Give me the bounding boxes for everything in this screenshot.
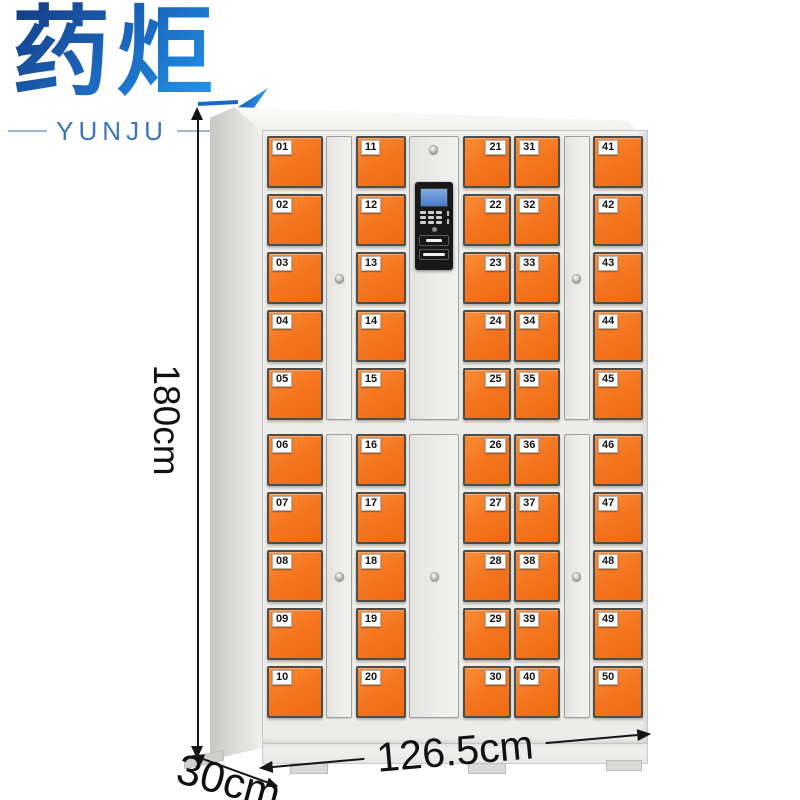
locker-door: 45 xyxy=(593,368,643,420)
indicator-lights-icon xyxy=(447,211,449,224)
logo-flank-line-left xyxy=(8,130,47,132)
door-number-label: 19 xyxy=(361,612,381,627)
locker-door: 11 xyxy=(356,136,406,188)
door-number-label: 38 xyxy=(519,554,539,569)
door-number-label: 37 xyxy=(519,496,539,511)
locker-door: 18 xyxy=(356,550,406,602)
brand-logo-text: 药炬 xyxy=(12,0,220,106)
locker-door-column: 21222324252627282930 xyxy=(463,136,511,743)
locker-door: 28 xyxy=(463,550,511,602)
locker-slot: 41 xyxy=(593,136,643,188)
arrow-up-icon xyxy=(191,107,203,120)
keypad-icon xyxy=(420,211,442,224)
lock-panel-upper xyxy=(326,136,352,420)
locker-door: 01 xyxy=(267,136,323,188)
door-number-label: 48 xyxy=(598,554,618,569)
locker-slot: 04 xyxy=(267,310,323,362)
locker-door: 23 xyxy=(463,252,511,304)
door-number-label: 14 xyxy=(361,314,381,329)
lock-panel-lower xyxy=(326,434,352,718)
locker-slot: 39 xyxy=(514,608,560,660)
door-number-label: 34 xyxy=(519,314,539,329)
door-number-label: 39 xyxy=(519,612,539,627)
keypad-row xyxy=(415,207,453,224)
locker-door: 10 xyxy=(267,666,323,718)
keyhole-icon xyxy=(335,572,344,581)
door-number-label: 50 xyxy=(598,670,618,685)
door-number-label: 29 xyxy=(485,612,505,627)
locker-door: 12 xyxy=(356,194,406,246)
door-number-label: 27 xyxy=(485,496,505,511)
locker-slot: 40 xyxy=(514,666,560,718)
keyhole-icon xyxy=(429,145,438,154)
locker-slot: 21 xyxy=(463,136,511,188)
locker-door: 04 xyxy=(267,310,323,362)
locker-door: 43 xyxy=(593,252,643,304)
door-number-label: 25 xyxy=(485,372,505,387)
keyhole-icon xyxy=(430,572,439,581)
locker-door: 39 xyxy=(514,608,560,660)
door-number-label: 33 xyxy=(519,256,539,271)
locker-door: 44 xyxy=(593,310,643,362)
control-column xyxy=(409,136,459,743)
locker-door: 37 xyxy=(514,492,560,544)
locker-slot: 02 xyxy=(267,194,323,246)
door-number-label: 16 xyxy=(361,438,381,453)
door-number-label: 06 xyxy=(272,438,292,453)
locker-door: 25 xyxy=(463,368,511,420)
speaker-icon xyxy=(432,227,437,232)
locker-door-column: 01020304050607080910 xyxy=(267,136,323,743)
locker-slot: 26 xyxy=(463,434,511,486)
locker-door-column: 41424344454647484950 xyxy=(593,136,643,743)
locker-slot: 48 xyxy=(593,550,643,602)
locker-door: 06 xyxy=(267,434,323,486)
locker-door: 21 xyxy=(463,136,511,188)
locker-slot: 47 xyxy=(593,492,643,544)
locker-slot: 32 xyxy=(514,194,560,246)
lcd-screen-icon xyxy=(420,188,448,207)
locker-slot: 09 xyxy=(267,608,323,660)
locker-slot: 46 xyxy=(593,434,643,486)
service-panel-lower xyxy=(409,434,459,718)
door-number-label: 32 xyxy=(519,198,539,213)
door-number-label: 12 xyxy=(361,198,381,213)
door-number-label: 43 xyxy=(598,256,618,271)
keyhole-icon xyxy=(572,572,581,581)
locker-door-column: 11121314151617181920 xyxy=(356,136,406,743)
product-image: 药炬 YUNJU 0102030405060708091011121314151… xyxy=(0,0,800,800)
locker-slot: 11 xyxy=(356,136,406,188)
arrow-right-icon xyxy=(637,728,652,741)
locker-door: 03 xyxy=(267,252,323,304)
locker-door: 14 xyxy=(356,310,406,362)
door-number-label: 44 xyxy=(598,314,618,329)
locker-door: 24 xyxy=(463,310,511,362)
locker-door: 47 xyxy=(593,492,643,544)
door-number-label: 13 xyxy=(361,256,381,271)
lock-panel-lower xyxy=(564,434,590,718)
locker-slot: 33 xyxy=(514,252,560,304)
lock-panel-upper xyxy=(564,136,590,420)
locker-slot: 27 xyxy=(463,492,511,544)
locker-door: 49 xyxy=(593,608,643,660)
keyhole-icon xyxy=(335,274,344,283)
door-number-label: 45 xyxy=(598,372,618,387)
width-dimension-line xyxy=(273,758,365,769)
locker-door: 32 xyxy=(514,194,560,246)
locker-door: 27 xyxy=(463,492,511,544)
door-number-label: 26 xyxy=(485,438,505,453)
door-number-label: 47 xyxy=(598,496,618,511)
door-number-label: 31 xyxy=(519,140,539,155)
locker-door: 19 xyxy=(356,608,406,660)
side-lock-panel xyxy=(564,136,590,743)
locker-door: 15 xyxy=(356,368,406,420)
door-number-label: 23 xyxy=(485,256,505,271)
locker-slot: 29 xyxy=(463,608,511,660)
door-number-label: 03 xyxy=(272,256,292,271)
door-number-label: 21 xyxy=(485,140,505,155)
locker-door: 13 xyxy=(356,252,406,304)
door-number-label: 28 xyxy=(485,554,505,569)
door-number-label: 24 xyxy=(485,314,505,329)
locker-slot: 44 xyxy=(593,310,643,362)
locker-slot: 38 xyxy=(514,550,560,602)
locker-slot: 35 xyxy=(514,368,560,420)
keyhole-icon xyxy=(572,274,581,283)
locker-slot: 24 xyxy=(463,310,511,362)
locker-door: 31 xyxy=(514,136,560,188)
door-number-label: 49 xyxy=(598,612,618,627)
locker-slot: 43 xyxy=(593,252,643,304)
locker-slot: 30 xyxy=(463,666,511,718)
locker-door: 26 xyxy=(463,434,511,486)
locker-door: 36 xyxy=(514,434,560,486)
control-panel xyxy=(415,182,453,270)
locker-door: 30 xyxy=(463,666,511,718)
locker-door: 33 xyxy=(514,252,560,304)
door-number-label: 08 xyxy=(272,554,292,569)
locker-door: 40 xyxy=(514,666,560,718)
locker-slot: 03 xyxy=(267,252,323,304)
door-number-label: 18 xyxy=(361,554,381,569)
locker-slot: 31 xyxy=(514,136,560,188)
door-number-label: 15 xyxy=(361,372,381,387)
locker-door: 42 xyxy=(593,194,643,246)
locker-slot: 15 xyxy=(356,368,406,420)
locker-slot: 23 xyxy=(463,252,511,304)
width-dimension-line xyxy=(545,734,637,745)
side-lock-panel xyxy=(326,136,352,743)
locker-door: 17 xyxy=(356,492,406,544)
locker-slot: 14 xyxy=(356,310,406,362)
width-dimension-label: 126.5cm xyxy=(363,720,548,783)
door-number-label: 35 xyxy=(519,372,539,387)
locker-slot: 16 xyxy=(356,434,406,486)
locker-door: 07 xyxy=(267,492,323,544)
locker-slot: 10 xyxy=(267,666,323,718)
locker-door: 46 xyxy=(593,434,643,486)
locker-slot: 34 xyxy=(514,310,560,362)
door-number-label: 11 xyxy=(361,140,381,155)
door-number-label: 40 xyxy=(519,670,539,685)
locker-slot: 45 xyxy=(593,368,643,420)
door-number-label: 07 xyxy=(272,496,292,511)
locker-slot: 42 xyxy=(593,194,643,246)
door-number-label: 10 xyxy=(272,670,292,685)
door-number-label: 09 xyxy=(272,612,292,627)
locker-door: 35 xyxy=(514,368,560,420)
locker-slot: 49 xyxy=(593,608,643,660)
door-number-label: 02 xyxy=(272,198,292,213)
door-number-label: 42 xyxy=(598,198,618,213)
door-number-label: 22 xyxy=(485,198,505,213)
locker-slot: 06 xyxy=(267,434,323,486)
locker-slot: 07 xyxy=(267,492,323,544)
locker-door: 29 xyxy=(463,608,511,660)
locker-slot: 01 xyxy=(267,136,323,188)
locker-door: 02 xyxy=(267,194,323,246)
locker-door: 16 xyxy=(356,434,406,486)
locker-slot: 25 xyxy=(463,368,511,420)
locker-slot: 08 xyxy=(267,550,323,602)
brand-latin-name: YUNJU xyxy=(56,116,168,147)
locker-door: 05 xyxy=(267,368,323,420)
locker-door: 41 xyxy=(593,136,643,188)
receipt-slot-icon xyxy=(419,249,449,260)
locker-door-column: 31323334353637383940 xyxy=(514,136,560,743)
door-number-label: 20 xyxy=(361,670,381,685)
locker-slot: 28 xyxy=(463,550,511,602)
locker-slot: 12 xyxy=(356,194,406,246)
locker-slot: 36 xyxy=(514,434,560,486)
door-number-label: 05 xyxy=(272,372,292,387)
height-dimension-label: 180cm xyxy=(143,359,187,481)
cabinet-side-face xyxy=(208,104,262,762)
locker-door: 09 xyxy=(267,608,323,660)
control-door-panel xyxy=(409,136,459,420)
locker-slot: 37 xyxy=(514,492,560,544)
locker-slot: 20 xyxy=(356,666,406,718)
card-slot-icon xyxy=(419,235,449,246)
locker-door: 08 xyxy=(267,550,323,602)
door-number-label: 17 xyxy=(361,496,381,511)
door-number-label: 30 xyxy=(485,670,505,685)
door-number-label: 36 xyxy=(519,438,539,453)
cabinet-front-face: 0102030405060708091011121314151617181920… xyxy=(262,130,648,744)
door-number-label: 04 xyxy=(272,314,292,329)
locker-door: 38 xyxy=(514,550,560,602)
locker-slot: 05 xyxy=(267,368,323,420)
locker-slot: 13 xyxy=(356,252,406,304)
locker-door: 34 xyxy=(514,310,560,362)
locker-door: 20 xyxy=(356,666,406,718)
locker-slot: 22 xyxy=(463,194,511,246)
door-number-label: 41 xyxy=(598,140,618,155)
door-number-label: 01 xyxy=(272,140,292,155)
locker-slot: 19 xyxy=(356,608,406,660)
locker-door: 22 xyxy=(463,194,511,246)
locker-slot: 17 xyxy=(356,492,406,544)
height-dimension-line xyxy=(197,116,199,756)
door-number-label: 46 xyxy=(598,438,618,453)
locker-slot: 18 xyxy=(356,550,406,602)
brand-logo-subtitle: YUNJU xyxy=(8,118,216,144)
locker-door: 48 xyxy=(593,550,643,602)
